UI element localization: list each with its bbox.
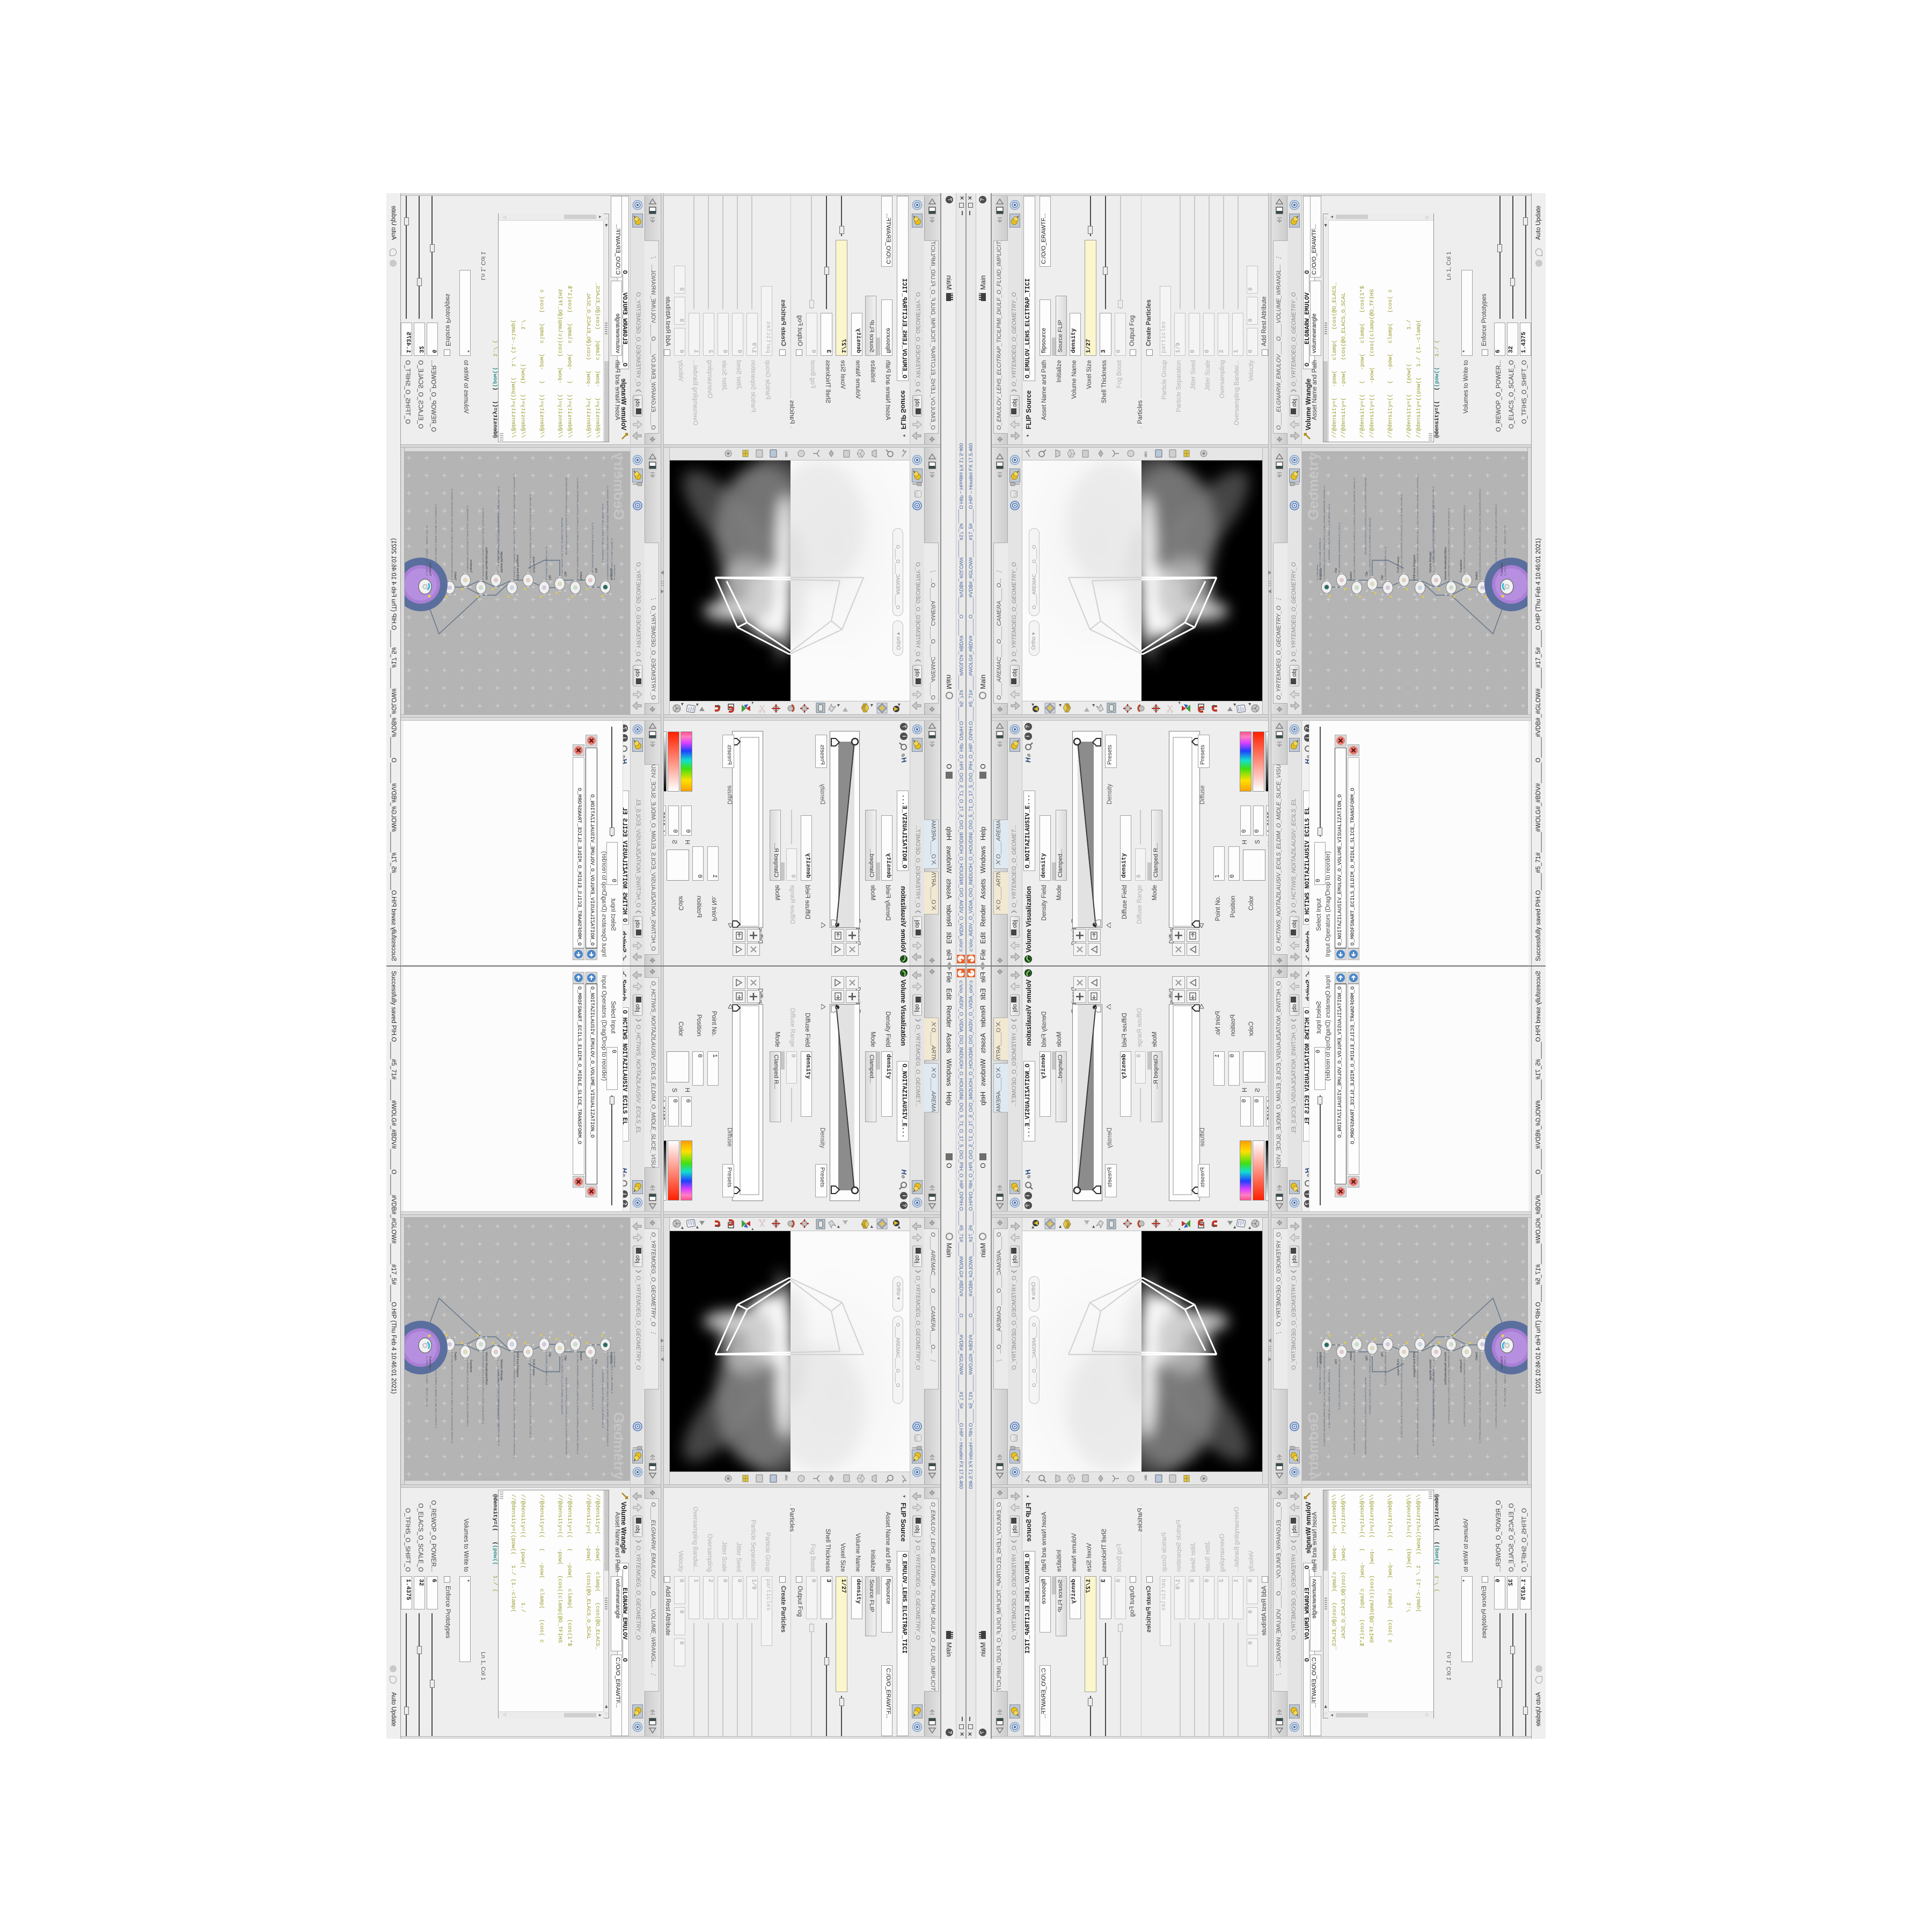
- svg-text:O_DNUOBER_KCABLLUF_DERAHS_LLUB: O_DNUOBER_KCABLLUF_DERAHS_LLUB_MROFEVAW_…: [602, 504, 604, 563]
- svg-text:O_MROFSNART_ECILS_ELDIM_O_MIDL: O_MROFSNART_ECILS_ELDIM_O_MIDLE_SLICE_TR…: [1463, 1359, 1466, 1426]
- svg-text:Geometry: Geometry: [611, 1412, 627, 1480]
- svg-text:O_HCTIWS_NOITAZILAUSIV_ECILS_E: O_HCTIWS_NOITAZILAUSIV_ECILS_ELDIM_O_MID…: [451, 1352, 453, 1443]
- svg-text:O_EMULOV_LEHS_ELCITRAP_TICILPM: O_EMULOV_LEHS_ELCITRAP_TICILPMI_DIULF_O_…: [1400, 1359, 1403, 1438]
- svg-text:O_MROSSNART_TLUSER_O_RESULT_TR: O_MROSSNART_TLUSER_O_RESULT_TRANSF: [426, 1356, 428, 1407]
- svg-text:abc: abc: [784, 1475, 788, 1481]
- svg-text:O_EREHPS_EBUC_O_CUBE_SPHERE_O: O_EREHPS_EBUC_O_CUBE_SPHERE_O: [1319, 1352, 1321, 1394]
- svg-text:O_HCTIWS_NOITAZILAUSIV_ECILS_E: O_HCTIWS_NOITAZILAUSIV_ECILS_ELDIM_O_MID…: [1479, 489, 1481, 580]
- svg-text:O_EREHPS_EBUC_O_CUBE_SPHERE_O: O_EREHPS_EBUC_O_CUBE_SPHERE_O: [1319, 538, 1321, 580]
- svg-text:O_PILC_EREHPS_TUC_O_CUT_SPHERE: O_PILC_EREHPS_TUC_O_CUT_SPHERE_CLIP_SB30…: [561, 1356, 563, 1415]
- svg-text:O_EGDIRBC_DNUOBER_PILC_O: O_EGDIRBC_DNUOBER_PILC_O: [1384, 547, 1387, 580]
- svg-text:JBO.M03_PETS.TRPOLS_O_5OU6DS_O: JBO.M03_PETS.TRPOLS_O_5OU6DS_O_CEXUS3_D.…: [1364, 1377, 1367, 1454]
- svg-text:BU_LIBUORGODB_GANJBUROB_ELIF_O: BU_LIBUORGODB_GANJBUROB_ELIF_O_FILE_O: [591, 1359, 594, 1410]
- svg-text:O_BRE_DRU_GMP3NGE/J/POWBRUTE/C: O_BRE_DRU_GMP3NGE/J/POWBRUTE/CLEAR.THE.S…: [1432, 1369, 1435, 1446]
- svg-text:abc: abc: [1144, 1475, 1148, 1481]
- svg-text:O_EMULOV_LEHS_ELCITRAP_TICILPM: O_EMULOV_LEHS_ELCITRAP_TICILPMI_DIULF_O_…: [529, 1359, 532, 1438]
- svg-text:O_HCTIWS_YRTEMOEG_LANRETXE_LAN: O_HCTIWS_YRTEMOEG_LANRETXE_LANRETNI_O_IN…: [1353, 1352, 1356, 1454]
- svg-text:O_MROSSNART_TLUSER_O_RESULT_TR: O_MROSSNART_TLUSER_O_RESULT_TRANSF: [426, 525, 428, 576]
- svg-text:O_MROFSNART_ECILS_ELDIM_O_MIDL: O_MROFSNART_ECILS_ELDIM_O_MIDLE_SLICE_TR…: [466, 1359, 469, 1426]
- svg-text:O_MROSSNART_TLUSER_O_RESULT_TR: O_MROSSNART_TLUSER_O_RESULT_TRANSF: [1504, 525, 1506, 576]
- svg-text:O_EGDIRBC_DNUOBER_PILC_O: O_EGDIRBC_DNUOBER_PILC_O: [1384, 1352, 1387, 1385]
- svg-text:O_BRE_DRU_GMP3NGE/J/POWBRUTE/C: O_BRE_DRU_GMP3NGE/J/POWBRUTE/CLEAR.THE.S…: [497, 1369, 500, 1446]
- svg-text:O_MROSSNART_TLUSER_O_RESULT_TR: O_MROSSNART_TLUSER_O_RESULT_TRANSF: [1504, 1356, 1506, 1407]
- svg-text:O_MROFSNART_ECILS_ELDIM_O_MIDL: O_MROFSNART_ECILS_ELDIM_O_MIDLE_SLICE_TR…: [466, 506, 469, 573]
- svg-text:O_DNUOBER_KCABLLUF_DERAHS_LLUB: O_DNUOBER_KCABLLUF_DERAHS_LLUB_MROFEVAW_…: [1328, 1369, 1330, 1428]
- svg-text:abc: abc: [1144, 451, 1148, 457]
- svg-text:O_MROFSNART_ECILS_ELDIM_O_MIDL: O_MROFSNART_ECILS_ELDIM_O_MIDLE_SLICE_TR…: [1463, 506, 1466, 573]
- svg-text:O_EMASFERIW_NOGYLOP_EREHPS_EBU: O_EMASFERIW_NOGYLOP_EREHPS_EBUC_O_CUBE_S…: [1323, 486, 1326, 580]
- svg-text:O_EGDIRBC_DNUOBER_PILC_O: O_EGDIRBC_DNUOBER_PILC_O: [545, 547, 548, 580]
- svg-text:O_HCTIWS_NOITAZILAUSIV_ECILS_E: O_HCTIWS_NOITAZILAUSIV_ECILS_ELDIM_O_MID…: [1479, 1352, 1481, 1443]
- svg-text:un_CubeSphere: un_CubeSphere: [613, 564, 616, 580]
- svg-text:BU_LIBUORGODB_GANJBUROB_ELIF_O: BU_LIBUORGODB_GANJBUROB_ELIF_O_FILE_O: [1338, 522, 1341, 573]
- svg-text:BU_LIBUORGODB_GANJBUROB_ELIF_O: BU_LIBUORGODB_GANJBUROB_ELIF_O_FILE_O: [591, 522, 594, 573]
- svg-text:O_EMASFERIW_NOGYLOP_EREHPS_EBU: O_EMASFERIW_NOGYLOP_EREHPS_EBUC_O_CUBE_S…: [606, 486, 609, 580]
- svg-text:Geometry: Geometry: [1305, 452, 1321, 520]
- svg-text:O_DNUOBER_KCABLLUF_DERAHS_LLUB: O_DNUOBER_KCABLLUF_DERAHS_LLUB_MROFEVAW_…: [602, 1369, 604, 1428]
- svg-text:O_MORFSNART_ECILS_ELDIM_O_ECIL: O_MORFSNART_ECILS_ELDIM_O_ECILS_O_SLICE_…: [1447, 508, 1450, 580]
- svg-text:O_EMULOV_LEHS_ELCITRAP_TICILPM: O_EMULOV_LEHS_ELCITRAP_TICILPMI_DIULF_O_…: [1400, 494, 1403, 573]
- svg-text:O_EMULOV_LEHS_ELCITRAP_TICILPM: O_EMULOV_LEHS_ELCITRAP_TICILPMI_DIULF_O_…: [529, 494, 532, 573]
- svg-text:O_EREHPS_EBUC_O_CUBE_SPHERE_O: O_EREHPS_EBUC_O_CUBE_SPHERE_O: [611, 1352, 613, 1394]
- svg-text:O_MORFSNART_ECILS_ELDIM_O_ECIL: O_MORFSNART_ECILS_ELDIM_O_ECILS_O_SLICE_…: [482, 508, 485, 580]
- svg-text:O_EREHPS_EBUC_O_CUBE_SPHERE_O: O_EREHPS_EBUC_O_CUBE_SPHERE_O: [611, 538, 613, 580]
- svg-text:JBO.M03_PETS.TRPOLS_O_5OU6DS_O: JBO.M03_PETS.TRPOLS_O_5OU6DS_O_CEXUS3_D.…: [1364, 478, 1367, 555]
- svg-text:Geometry: Geometry: [611, 452, 627, 520]
- svg-text:O_MORFSNART_ECILS_ELDIM_O_ECIL: O_MORFSNART_ECILS_ELDIM_O_ECILS_O_SLICE_…: [1447, 1352, 1450, 1424]
- svg-text:O_SNOGILOP_YRTEMOEG_MORF_EMULO: O_SNOGILOP_YRTEMOEG_MORF_EMULOV_BDV_O_VD…: [513, 1352, 516, 1459]
- svg-text:O_EMASFERIW_NOGYLOP_EREHPS_EBU: O_EMASFERIW_NOGYLOP_EREHPS_EBUC_O_CUBE_S…: [606, 1352, 609, 1446]
- svg-text:O_BRE_DRU_GMP3NGE/J/POWBRUTE/C: O_BRE_DRU_GMP3NGE/J/POWBRUTE/CLEAR.THE.S…: [497, 486, 500, 563]
- svg-text:O_HCTIWS_YRTEMOEG_LANRETXE_LAN: O_HCTIWS_YRTEMOEG_LANRETXE_LANRETNI_O_IN…: [576, 478, 579, 580]
- svg-text:O_EMASFERIW_NOGYLOP_EREHPS_EBU: O_EMASFERIW_NOGYLOP_EREHPS_EBUC_O_CUBE_S…: [1323, 1352, 1326, 1446]
- svg-text:O_SNOGILOP_YRTEMOEG_MORF_EMULO: O_SNOGILOP_YRTEMOEG_MORF_EMULOV_BDV_O_VD…: [1416, 1352, 1419, 1459]
- svg-text:O_MORFSNART_ECILS_ELDIM_O_ECIL: O_MORFSNART_ECILS_ELDIM_O_ECILS_O_SLICE_…: [482, 1352, 485, 1424]
- svg-text:abc: abc: [784, 451, 788, 457]
- svg-text:JBO.M03_PETS.TRPOLS_O_5OU6DS_O: JBO.M03_PETS.TRPOLS_O_5OU6DS_O_CEXUS3_D.…: [565, 1377, 568, 1454]
- svg-text:JBO.M03_PETS.TRPOLS_O_5OU6DS_O: JBO.M03_PETS.TRPOLS_O_5OU6DS_O_CEXUS3_D.…: [565, 478, 568, 555]
- svg-text:O_SNOGILOP_YRTEMOEG_MORF_EMULO: O_SNOGILOP_YRTEMOEG_MORF_EMULOV_BDV_O_VD…: [513, 474, 516, 581]
- svg-text:Geometry: Geometry: [1305, 1412, 1321, 1480]
- svg-text:O_DNUOBER_KCABLLUF_DERAHS_LLUB: O_DNUOBER_KCABLLUF_DERAHS_LLUB_MROFEVAW_…: [1328, 504, 1330, 563]
- svg-text:O_HCTIWS_NOITAZILAUSIV_ECILS_E: O_HCTIWS_NOITAZILAUSIV_ECILS_ELDIM_O_MID…: [451, 489, 453, 580]
- svg-text:BU_LIBUORGODB_GANJBUROB_ELIF_O: BU_LIBUORGODB_GANJBUROB_ELIF_O_FILE_O: [1338, 1359, 1341, 1410]
- svg-text:O_HCTIWS_YRTEMOEG_LANRETXE_LAN: O_HCTIWS_YRTEMOEG_LANRETXE_LANRETNI_O_IN…: [576, 1352, 579, 1454]
- svg-text:O_HCTIWS_YRTEMOEG_LANRETXE_LAN: O_HCTIWS_YRTEMOEG_LANRETXE_LANRETNI_O_IN…: [1353, 478, 1356, 580]
- svg-text:O_SNOGILOP_YRTEMOEG_MORF_EMULO: O_SNOGILOP_YRTEMOEG_MORF_EMULOV_BDV_O_VD…: [1416, 474, 1419, 581]
- svg-text:O_BRE_DRU_GMP3NGE/J/POWBRUTE/C: O_BRE_DRU_GMP3NGE/J/POWBRUTE/CLEAR.THE.S…: [1432, 486, 1435, 563]
- svg-text:O_PILC_EREHPS_TUC_O_CUT_SPHERE: O_PILC_EREHPS_TUC_O_CUT_SPHERE_CLIP_SB30…: [1368, 517, 1371, 576]
- svg-text:O_EGDIRBC_DNUOBER_PILC_O: O_EGDIRBC_DNUOBER_PILC_O: [545, 1352, 548, 1385]
- svg-text:O_PILC_EREHPS_TUC_O_CUT_SPHERE: O_PILC_EREHPS_TUC_O_CUT_SPHERE_CLIP_SB30…: [1368, 1356, 1371, 1415]
- svg-text:O_PILC_EREHPS_TUC_O_CUT_SPHERE: O_PILC_EREHPS_TUC_O_CUT_SPHERE_CLIP_SB30…: [561, 517, 563, 576]
- svg-text:un_CubeSphere: un_CubeSphere: [613, 1352, 616, 1368]
